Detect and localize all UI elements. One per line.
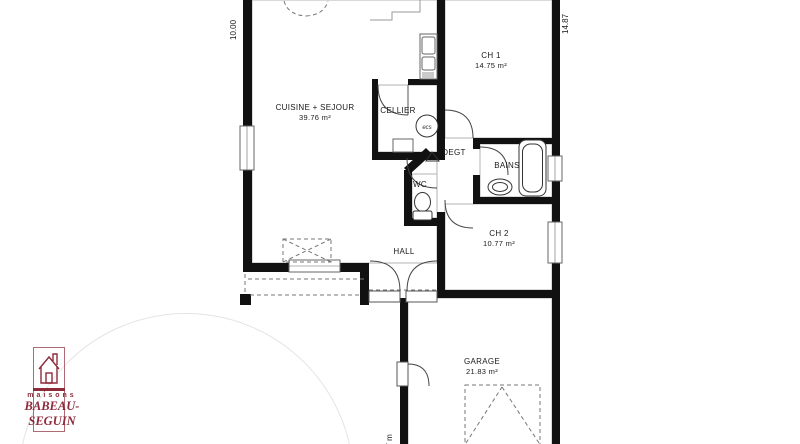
cellier-appliance-icon [393,139,413,152]
room-label-wc: WC [407,180,433,190]
room-label-garage: GARAGE 21.83 m² [446,357,518,376]
room-label-ch1: CH 1 14.75 m² [455,51,527,70]
floor-plan: ecs CUISINE + SEJOUR 39.76 m² CELLIER CH… [0,0,800,444]
dimension-label-left: 10.00 [229,20,238,40]
dimension-label-garage: 07 m [385,434,394,444]
toilet-icon [413,193,432,221]
room-label-ch2: CH 2 10.77 m² [468,229,530,248]
logo-divider [33,388,65,391]
svg-text:ecs: ecs [422,125,431,131]
top-door-arc-right [306,1,328,16]
room-label-degt: DEGT [439,148,469,158]
kitchen-counter-line [370,0,420,20]
room-label-cuisine-sejour: CUISINE + SEJOUR 39.76 m² [253,103,377,122]
top-door-arc-left [284,1,306,16]
bathroom-sink-icon [488,179,512,195]
logo-brand-text: BABEAU-SEGUIN [2,399,102,429]
dimension-label-right: 14.87 [561,14,570,34]
floor-plan-drawing: ecs [0,0,800,444]
house-icon [37,352,61,386]
water-heater-icon: ecs [416,115,438,137]
garage-door-icon [465,385,540,444]
room-label-bains: BAINS [487,161,527,171]
logo-maisons-text: maisons [6,392,98,399]
room-label-cellier: CELLIER [374,106,422,116]
kitchen-sink-icon [420,34,437,79]
room-label-hall: HALL [384,247,424,257]
